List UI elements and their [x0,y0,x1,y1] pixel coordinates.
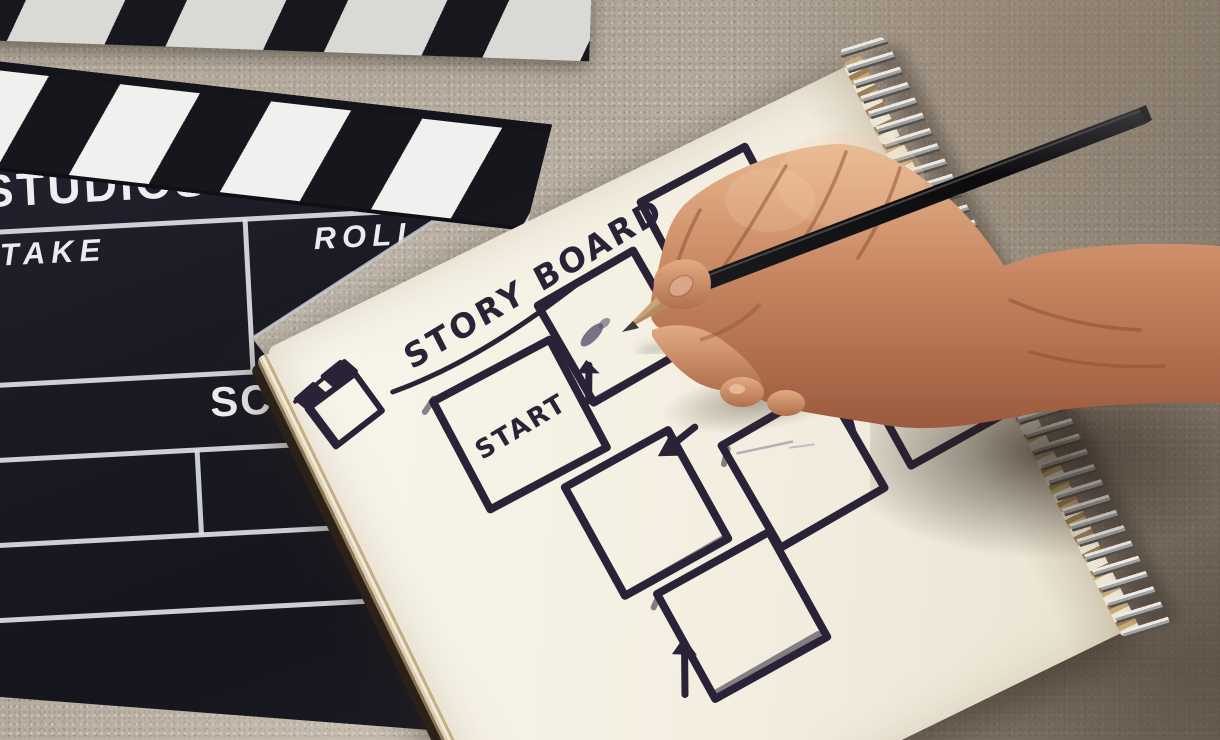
fingertip [767,390,805,416]
knuckle-highlight [725,168,815,232]
hand-and-pencil [0,0,1220,740]
photo-scene: L STUDIOS® TAKE ROLL SC [0,0,1220,740]
fingernail [729,384,745,394]
